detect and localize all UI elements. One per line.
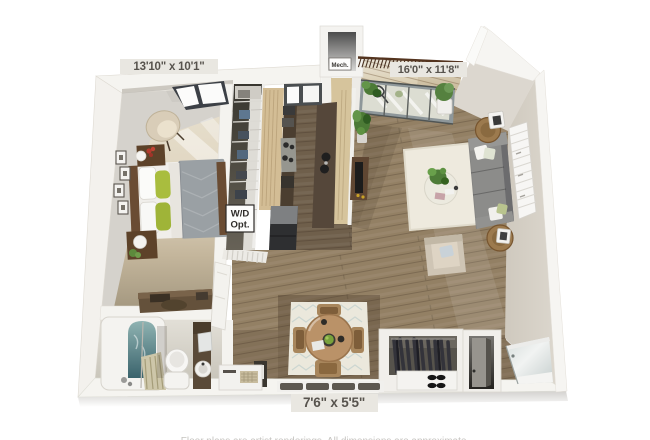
svg-text:Opt.: Opt.: [231, 220, 250, 231]
svg-text:Mech.: Mech.: [331, 63, 348, 69]
svg-text:13'10" x 10'1": 13'10" x 10'1": [133, 61, 204, 73]
svg-text:Floor plans are artist renderi: Floor plans are artist renderings. All d…: [181, 436, 469, 440]
svg-text:7'6" x 5'5": 7'6" x 5'5": [303, 395, 365, 410]
svg-text:16'0" x 11'8": 16'0" x 11'8": [398, 64, 459, 76]
svg-text:W/D: W/D: [231, 209, 250, 220]
